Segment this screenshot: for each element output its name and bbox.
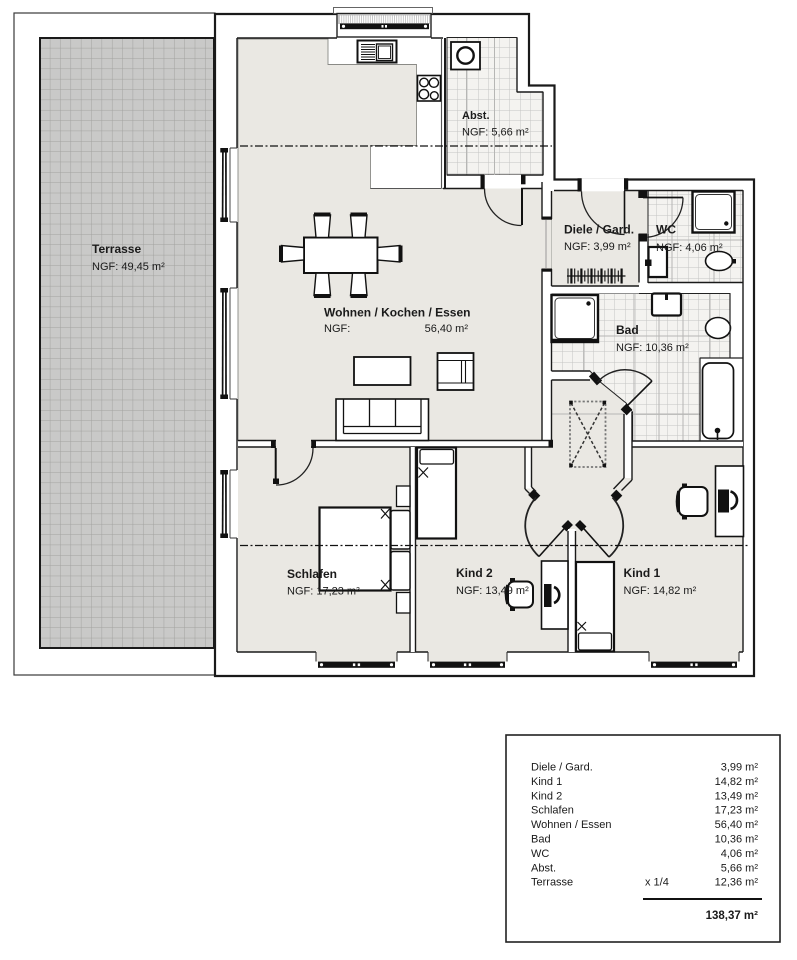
svg-text:Schlafen: Schlafen bbox=[531, 805, 574, 817]
svg-text:Bad: Bad bbox=[616, 323, 639, 337]
svg-text:14,82 m²: 14,82 m² bbox=[715, 776, 759, 788]
svg-text:Kind 1: Kind 1 bbox=[531, 776, 562, 788]
svg-text:Kind 1: Kind 1 bbox=[624, 566, 661, 580]
svg-text:Terrasse: Terrasse bbox=[531, 877, 573, 889]
svg-text:138,37 m²: 138,37 m² bbox=[706, 910, 759, 922]
svg-text:56,40 m²: 56,40 m² bbox=[715, 819, 759, 831]
svg-text:WC: WC bbox=[531, 848, 549, 860]
svg-text:WC: WC bbox=[656, 223, 676, 237]
svg-text:NGF: 5,66 m²: NGF: 5,66 m² bbox=[462, 127, 529, 139]
svg-text:Abst.: Abst. bbox=[462, 110, 490, 122]
svg-text:NGF:: NGF: bbox=[324, 323, 350, 335]
svg-text:56,40 m²: 56,40 m² bbox=[425, 323, 469, 335]
svg-text:Schlafen: Schlafen bbox=[287, 567, 337, 581]
svg-text:3,99 m²: 3,99 m² bbox=[721, 762, 759, 774]
svg-text:Kind 2: Kind 2 bbox=[456, 566, 493, 580]
svg-text:10,36 m²: 10,36 m² bbox=[715, 834, 759, 846]
svg-text:Abst.: Abst. bbox=[531, 862, 556, 874]
svg-text:NGF: 14,82 m²: NGF: 14,82 m² bbox=[624, 585, 697, 597]
svg-text:12,36 m²: 12,36 m² bbox=[715, 877, 759, 889]
svg-text:NGF: 4,06 m²: NGF: 4,06 m² bbox=[656, 242, 723, 254]
svg-text:NGF: 3,99 m²: NGF: 3,99 m² bbox=[564, 241, 631, 253]
svg-text:Bad: Bad bbox=[531, 834, 551, 846]
svg-text:Terrasse: Terrasse bbox=[92, 242, 141, 256]
svg-text:Wohnen / Essen: Wohnen / Essen bbox=[531, 819, 612, 831]
svg-text:NGF: 49,45 m²: NGF: 49,45 m² bbox=[92, 261, 165, 273]
svg-text:Diele / Gard.: Diele / Gard. bbox=[531, 762, 593, 774]
svg-text:NGF: 17,23 m²: NGF: 17,23 m² bbox=[287, 586, 360, 598]
svg-text:17,23 m²: 17,23 m² bbox=[715, 805, 759, 817]
svg-text:NGF: 13,49 m²: NGF: 13,49 m² bbox=[456, 585, 529, 597]
svg-text:x 1/4: x 1/4 bbox=[645, 877, 669, 889]
svg-text:5,66 m²: 5,66 m² bbox=[721, 862, 759, 874]
svg-text:NGF: 10,36 m²: NGF: 10,36 m² bbox=[616, 342, 689, 354]
svg-text:4,06 m²: 4,06 m² bbox=[721, 848, 759, 860]
svg-text:Wohnen / Kochen / Essen: Wohnen / Kochen / Essen bbox=[324, 306, 470, 320]
svg-text:Diele / Gard.: Diele / Gard. bbox=[564, 223, 634, 237]
svg-text:13,49 m²: 13,49 m² bbox=[715, 790, 759, 802]
svg-text:Kind 2: Kind 2 bbox=[531, 790, 562, 802]
